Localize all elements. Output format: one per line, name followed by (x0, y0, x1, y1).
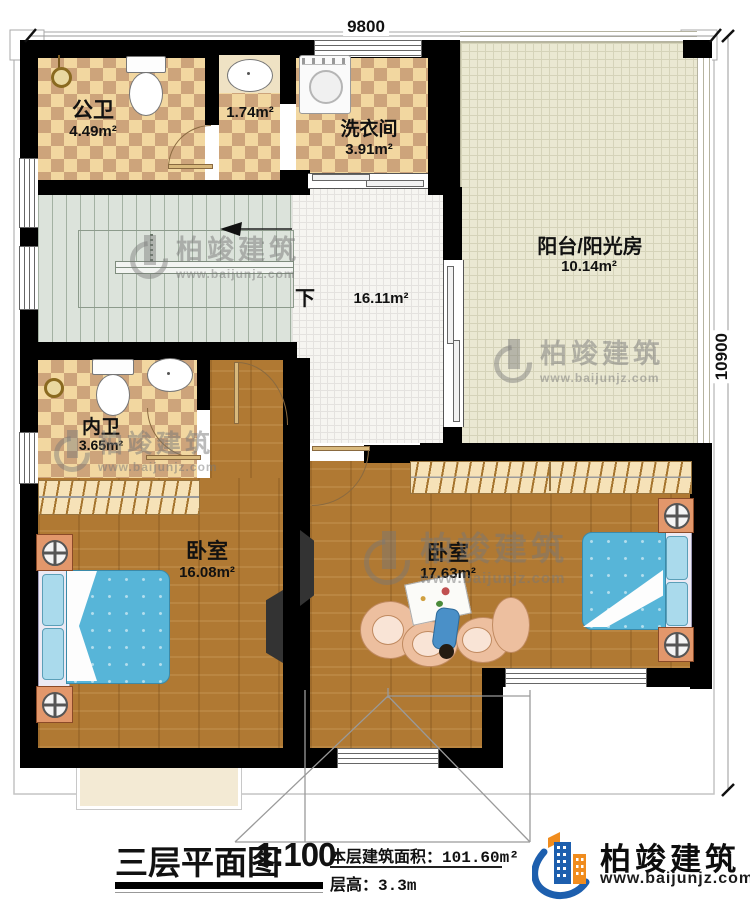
washing-machine-drum (309, 70, 343, 104)
window-bedroom2-south (337, 748, 439, 768)
floor-plan-page: 公卫 4.49m² 1.74m² 洗衣间 3.91m² 阳台/阳光房 10.14… (0, 0, 750, 902)
window-left-stair-2 (19, 246, 38, 310)
wardrobe-divider (549, 462, 551, 491)
wall-stairs-bottom (20, 342, 297, 360)
stairs-down-label: 下 (295, 289, 315, 310)
room-floor-hall (292, 187, 443, 443)
wall-gongwei-corridor (205, 55, 219, 125)
sunroom-glass-band-top (460, 31, 697, 42)
toilet-tank-gongwei (126, 56, 166, 73)
toilet-bowl-neiwei (96, 374, 130, 416)
wall-neiwei-right (197, 358, 210, 410)
title-block: 三层平面图 1:100 本层建筑面积：101.60m² 层高：3.3m (0, 826, 750, 902)
laundry-slide-panel-2 (366, 180, 424, 187)
sink-drain-neiwei (167, 372, 170, 375)
door-leaf-neiwei (146, 455, 201, 460)
washing-machine-panel (302, 58, 346, 65)
room-area-bedroom1: 16.08m² (179, 565, 235, 581)
wall-left (20, 40, 38, 768)
person-head (439, 644, 454, 659)
window-bedroom2-east (505, 668, 647, 687)
wall-corridor-laundry (280, 40, 296, 104)
door-leaf-gongwei (168, 164, 213, 169)
window-left-neiwei (19, 432, 38, 484)
person-figure (428, 600, 464, 662)
toilet-bowl-gongwei (129, 72, 163, 116)
door-leaf-bedroom2 (312, 446, 370, 451)
title-underline (115, 882, 323, 889)
sink-neiwei (147, 358, 193, 392)
sink-corridor (227, 59, 273, 92)
floor-height-label: 层高： (330, 877, 378, 894)
laundry-slide-panel-1 (312, 174, 370, 181)
brand-logo-icon (532, 830, 596, 900)
room-label-gongwei: 公卫 (72, 100, 114, 122)
lamp-bedroom2-b (664, 632, 690, 658)
room-area-neiwei: 3.65m² (79, 438, 123, 453)
title-underline-thin (115, 892, 323, 893)
pillow-bedroom2-a (666, 536, 688, 580)
pillow-bedroom1-a (42, 574, 64, 626)
painting-dot-red (441, 587, 450, 596)
sofa-seat-1 (372, 615, 404, 645)
floor-area-row: 本层建筑面积：101.60m² (330, 843, 519, 867)
sofa-back-4 (492, 597, 530, 653)
floor-height-value: 3.3m (378, 877, 416, 895)
sunroom-slide-panel-1 (447, 266, 454, 344)
room-label-bedroom2: 卧室 (427, 543, 469, 565)
wall-hall-sunroom-top (443, 187, 462, 260)
tv-bedroom2 (300, 530, 314, 606)
tv-bedroom1 (266, 590, 283, 663)
floor-height-row: 层高：3.3m (330, 871, 416, 895)
wall-sunroom-bottom (420, 443, 712, 463)
brand-logo: 柏竣建筑 www.baijunjz.com (532, 826, 744, 902)
sunroom-glass-band-right (697, 42, 712, 445)
sofa-seat-3 (462, 627, 492, 653)
room-area-corridor: 1.74m² (226, 105, 274, 121)
sunroom-slide-panel-2 (453, 340, 460, 422)
room-label-neiwei: 内卫 (82, 418, 120, 438)
brand-url: www.baijunjz.com (600, 870, 750, 888)
stair-handrail (115, 261, 294, 274)
toilet-tank-neiwei (92, 359, 134, 375)
wardrobe-bedroom2 (410, 461, 692, 494)
room-label-bedroom1: 卧室 (186, 541, 228, 563)
pillow-bedroom2-b (666, 582, 688, 626)
balcony-slab (80, 768, 238, 806)
stair-break-dashes (150, 234, 153, 262)
lamp-bedroom1-a (42, 540, 68, 566)
room-area-bedroom2: 17.63m² (420, 566, 476, 582)
floor-area-label: 本层建筑面积： (330, 849, 442, 866)
wall-bath-step (280, 170, 310, 195)
wall-bath-bottom (20, 180, 282, 195)
wardrobe-bedroom1 (38, 480, 200, 515)
floor-area-value: 101.60m² (442, 849, 519, 867)
titleblock-divider (330, 866, 502, 868)
lamp-ring-gongwei (51, 67, 72, 88)
room-area-sunroom: 10.14m² (561, 259, 617, 275)
dimension-right: 10900 (712, 330, 732, 383)
lamp-ring-neiwei (44, 378, 64, 398)
room-label-laundry: 洗衣间 (340, 120, 397, 140)
pillow-bedroom1-b (42, 628, 64, 680)
lamp-bedroom1-b (42, 692, 68, 718)
wall-corner-topright (683, 40, 712, 58)
door-leaf-bedroom1 (234, 362, 239, 424)
sink-drain-corridor (247, 72, 250, 75)
window-left-stair-1 (19, 158, 38, 228)
room-label-sunroom: 阳台/阳光房 (537, 237, 643, 258)
washing-machine (299, 55, 351, 114)
painting-dot-gold (420, 596, 426, 602)
room-area-hall: 16.11m² (353, 291, 408, 307)
room-area-laundry: 3.91m² (345, 142, 393, 158)
wall-bedroom1-bottom (20, 748, 290, 768)
lamp-bedroom2-a (664, 503, 690, 529)
plan-scale: 1:100 (256, 836, 335, 874)
dimension-top: 9800 (343, 18, 389, 36)
room-area-gongwei: 4.49m² (69, 124, 117, 140)
